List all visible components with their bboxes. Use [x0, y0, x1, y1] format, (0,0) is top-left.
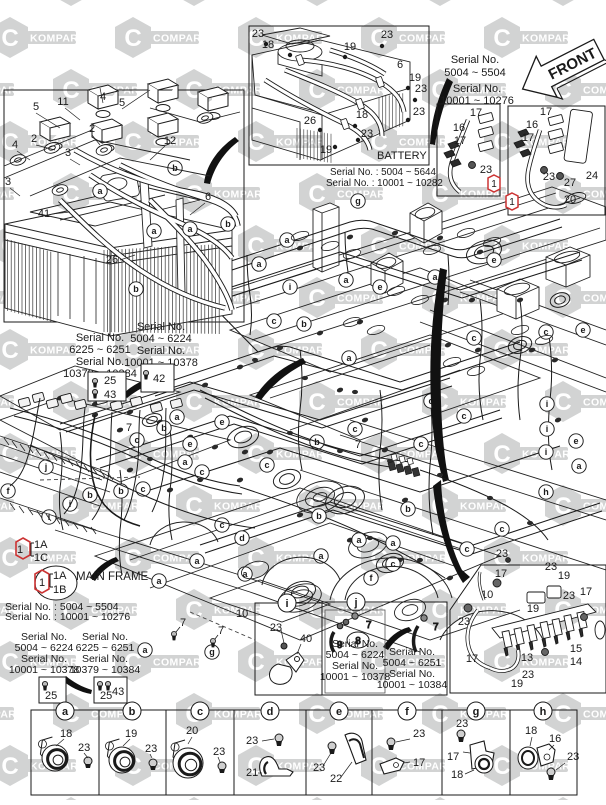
- svg-text:18: 18: [356, 109, 368, 121]
- svg-text:b: b: [118, 486, 124, 496]
- svg-text:23: 23: [413, 106, 425, 118]
- svg-text:2: 2: [89, 123, 95, 135]
- svg-text:13: 13: [521, 652, 533, 664]
- svg-text:43: 43: [112, 686, 124, 698]
- svg-text:10001 ~ 10384: 10001 ~ 10384: [377, 679, 448, 691]
- svg-text:MAIN FRAME: MAIN FRAME: [76, 571, 149, 583]
- svg-text:Serial No.: Serial No.: [76, 332, 124, 344]
- svg-text:c: c: [499, 524, 504, 534]
- svg-text:22: 22: [330, 773, 342, 785]
- svg-text:j: j: [44, 462, 48, 472]
- svg-text:i: i: [285, 598, 288, 610]
- svg-text:1A: 1A: [53, 570, 67, 582]
- svg-text:Serial No. : 5004 ~ 5644: Serial No. : 5004 ~ 5644: [330, 167, 436, 178]
- svg-text:23: 23: [543, 171, 555, 183]
- svg-text:19: 19: [511, 678, 523, 690]
- svg-text:Serial No.: Serial No.: [453, 83, 501, 95]
- svg-text:j: j: [353, 597, 357, 609]
- svg-text:17: 17: [522, 132, 534, 144]
- svg-text:17: 17: [495, 568, 507, 580]
- svg-text:Serial No. : 10001 ~ 10282: Serial No. : 10001 ~ 10282: [326, 178, 443, 189]
- svg-text:23: 23: [213, 746, 225, 758]
- svg-text:26: 26: [304, 115, 316, 127]
- svg-text:23: 23: [522, 669, 534, 681]
- svg-text:g: g: [209, 647, 215, 657]
- svg-text:23: 23: [456, 718, 468, 730]
- svg-text:c: c: [418, 439, 423, 449]
- svg-text:d: d: [239, 533, 245, 543]
- svg-text:c: c: [471, 333, 476, 343]
- svg-text:41: 41: [38, 208, 50, 220]
- svg-text:2: 2: [31, 133, 37, 145]
- svg-text:17: 17: [466, 653, 478, 665]
- svg-text:17: 17: [454, 135, 466, 147]
- svg-text:16: 16: [549, 733, 561, 745]
- svg-text:b: b: [316, 511, 322, 521]
- svg-text:23: 23: [496, 548, 508, 560]
- svg-text:19: 19: [344, 41, 356, 53]
- svg-text:6: 6: [397, 59, 403, 71]
- svg-text:25: 25: [100, 690, 112, 702]
- svg-text:26: 26: [106, 254, 118, 266]
- svg-text:e: e: [377, 282, 382, 292]
- svg-text:18: 18: [525, 725, 537, 737]
- svg-text:c: c: [199, 467, 204, 477]
- svg-text:4: 4: [12, 139, 18, 151]
- svg-text:d: d: [267, 706, 274, 718]
- svg-text:c: c: [271, 316, 276, 326]
- svg-text:c: c: [264, 460, 269, 470]
- svg-text:21: 21: [246, 767, 258, 779]
- svg-text:i: i: [546, 424, 549, 434]
- svg-text:20: 20: [564, 194, 576, 206]
- svg-text:6: 6: [205, 191, 211, 203]
- svg-text:23: 23: [480, 164, 492, 176]
- svg-text:19: 19: [558, 570, 570, 582]
- svg-text:BATTERY: BATTERY: [377, 150, 427, 162]
- svg-text:23: 23: [145, 743, 157, 755]
- svg-text:Serial No.: Serial No.: [76, 356, 124, 368]
- svg-text:c: c: [464, 544, 469, 554]
- svg-text:42: 42: [153, 373, 165, 385]
- svg-text:19: 19: [125, 728, 137, 740]
- svg-text:17: 17: [447, 751, 459, 763]
- svg-text:10: 10: [236, 608, 248, 620]
- svg-text:7: 7: [366, 620, 372, 631]
- svg-text:i: i: [546, 399, 549, 409]
- svg-text:1B: 1B: [53, 584, 66, 596]
- svg-text:23: 23: [415, 83, 427, 95]
- svg-text:7: 7: [218, 625, 224, 637]
- svg-text:23: 23: [313, 762, 325, 774]
- svg-text:Serial No.: Serial No.: [137, 321, 185, 333]
- svg-text:23: 23: [246, 735, 258, 747]
- svg-text:40: 40: [300, 633, 312, 645]
- svg-text:16: 16: [453, 122, 465, 134]
- svg-text:7: 7: [180, 617, 186, 629]
- svg-text:17: 17: [580, 586, 592, 598]
- svg-text:27: 27: [564, 177, 576, 189]
- svg-text:b: b: [129, 706, 136, 718]
- svg-text:b: b: [301, 319, 307, 329]
- svg-text:h: h: [543, 487, 549, 497]
- svg-text:1: 1: [491, 179, 497, 190]
- svg-text:12: 12: [164, 135, 176, 147]
- svg-text:1: 1: [17, 544, 23, 556]
- svg-text:c: c: [140, 484, 145, 494]
- svg-text:10001 ~ 10276: 10001 ~ 10276: [440, 95, 514, 107]
- svg-text:7: 7: [355, 439, 361, 451]
- svg-text:14: 14: [570, 656, 582, 668]
- svg-text:c: c: [352, 424, 357, 434]
- svg-text:e: e: [219, 417, 224, 427]
- svg-text:1: 1: [39, 577, 45, 589]
- svg-text:e: e: [336, 706, 342, 718]
- svg-text:b: b: [161, 423, 167, 433]
- svg-text:7: 7: [126, 422, 132, 434]
- svg-text:i: i: [289, 282, 292, 292]
- svg-text:17: 17: [413, 757, 425, 769]
- svg-text:b: b: [225, 219, 231, 229]
- svg-text:c: c: [197, 706, 203, 718]
- svg-text:23: 23: [545, 561, 557, 573]
- svg-text:Serial No.: Serial No.: [137, 345, 185, 357]
- svg-text:15: 15: [570, 643, 582, 655]
- svg-text:23: 23: [413, 728, 425, 740]
- svg-text:e: e: [580, 325, 585, 335]
- svg-text:24: 24: [586, 170, 598, 182]
- svg-text:6225 ~ 6251: 6225 ~ 6251: [69, 344, 130, 356]
- svg-text:b: b: [133, 284, 139, 294]
- svg-text:a: a: [62, 706, 69, 718]
- svg-text:h: h: [540, 706, 547, 718]
- svg-text:19: 19: [527, 603, 539, 615]
- svg-text:23: 23: [458, 616, 470, 628]
- svg-text:7: 7: [433, 622, 439, 633]
- svg-text:10001 ~ 10378: 10001 ~ 10378: [9, 664, 80, 676]
- svg-text:Serial No.: Serial No.: [451, 54, 499, 66]
- svg-text:10379 ~ 10384: 10379 ~ 10384: [70, 664, 141, 676]
- svg-text:11: 11: [57, 96, 68, 108]
- svg-text:23: 23: [563, 590, 575, 602]
- svg-text:c: c: [390, 559, 395, 569]
- svg-text:i: i: [545, 447, 548, 457]
- svg-text:18: 18: [262, 39, 274, 51]
- svg-text:23: 23: [78, 742, 90, 754]
- svg-text:23: 23: [381, 29, 393, 41]
- svg-text:18: 18: [60, 728, 72, 740]
- svg-text:e: e: [491, 255, 496, 265]
- svg-text:3: 3: [65, 147, 71, 159]
- svg-text:Serial No. : 10001 ~ 10276: Serial No. : 10001 ~ 10276: [5, 611, 130, 623]
- svg-text:1: 1: [509, 197, 515, 208]
- svg-text:3: 3: [5, 176, 11, 188]
- svg-text:f: f: [405, 706, 409, 718]
- svg-text:18: 18: [451, 769, 463, 781]
- svg-text:23: 23: [270, 622, 282, 634]
- svg-text:20: 20: [186, 725, 198, 737]
- svg-text:23: 23: [567, 751, 579, 763]
- svg-text:17: 17: [470, 107, 482, 119]
- svg-text:25: 25: [45, 690, 57, 702]
- svg-text:1C: 1C: [34, 552, 48, 564]
- svg-text:g: g: [473, 706, 480, 718]
- svg-text:g: g: [355, 196, 361, 206]
- svg-text:b: b: [87, 490, 93, 500]
- svg-text:17: 17: [540, 106, 552, 118]
- svg-text:5004 ~ 6224: 5004 ~ 6224: [130, 333, 191, 345]
- svg-text:1A: 1A: [34, 539, 48, 551]
- svg-text:25: 25: [104, 375, 116, 387]
- svg-text:b: b: [405, 504, 411, 514]
- svg-text:e: e: [187, 439, 192, 449]
- svg-text:c: c: [461, 411, 466, 421]
- svg-text:43: 43: [104, 389, 116, 401]
- svg-text:19: 19: [320, 144, 332, 156]
- svg-text:23: 23: [361, 128, 373, 140]
- svg-text:5: 5: [33, 101, 39, 113]
- svg-text:16: 16: [526, 119, 538, 131]
- svg-text:e: e: [573, 436, 578, 446]
- svg-text:5004 ~ 5504: 5004 ~ 5504: [444, 67, 505, 79]
